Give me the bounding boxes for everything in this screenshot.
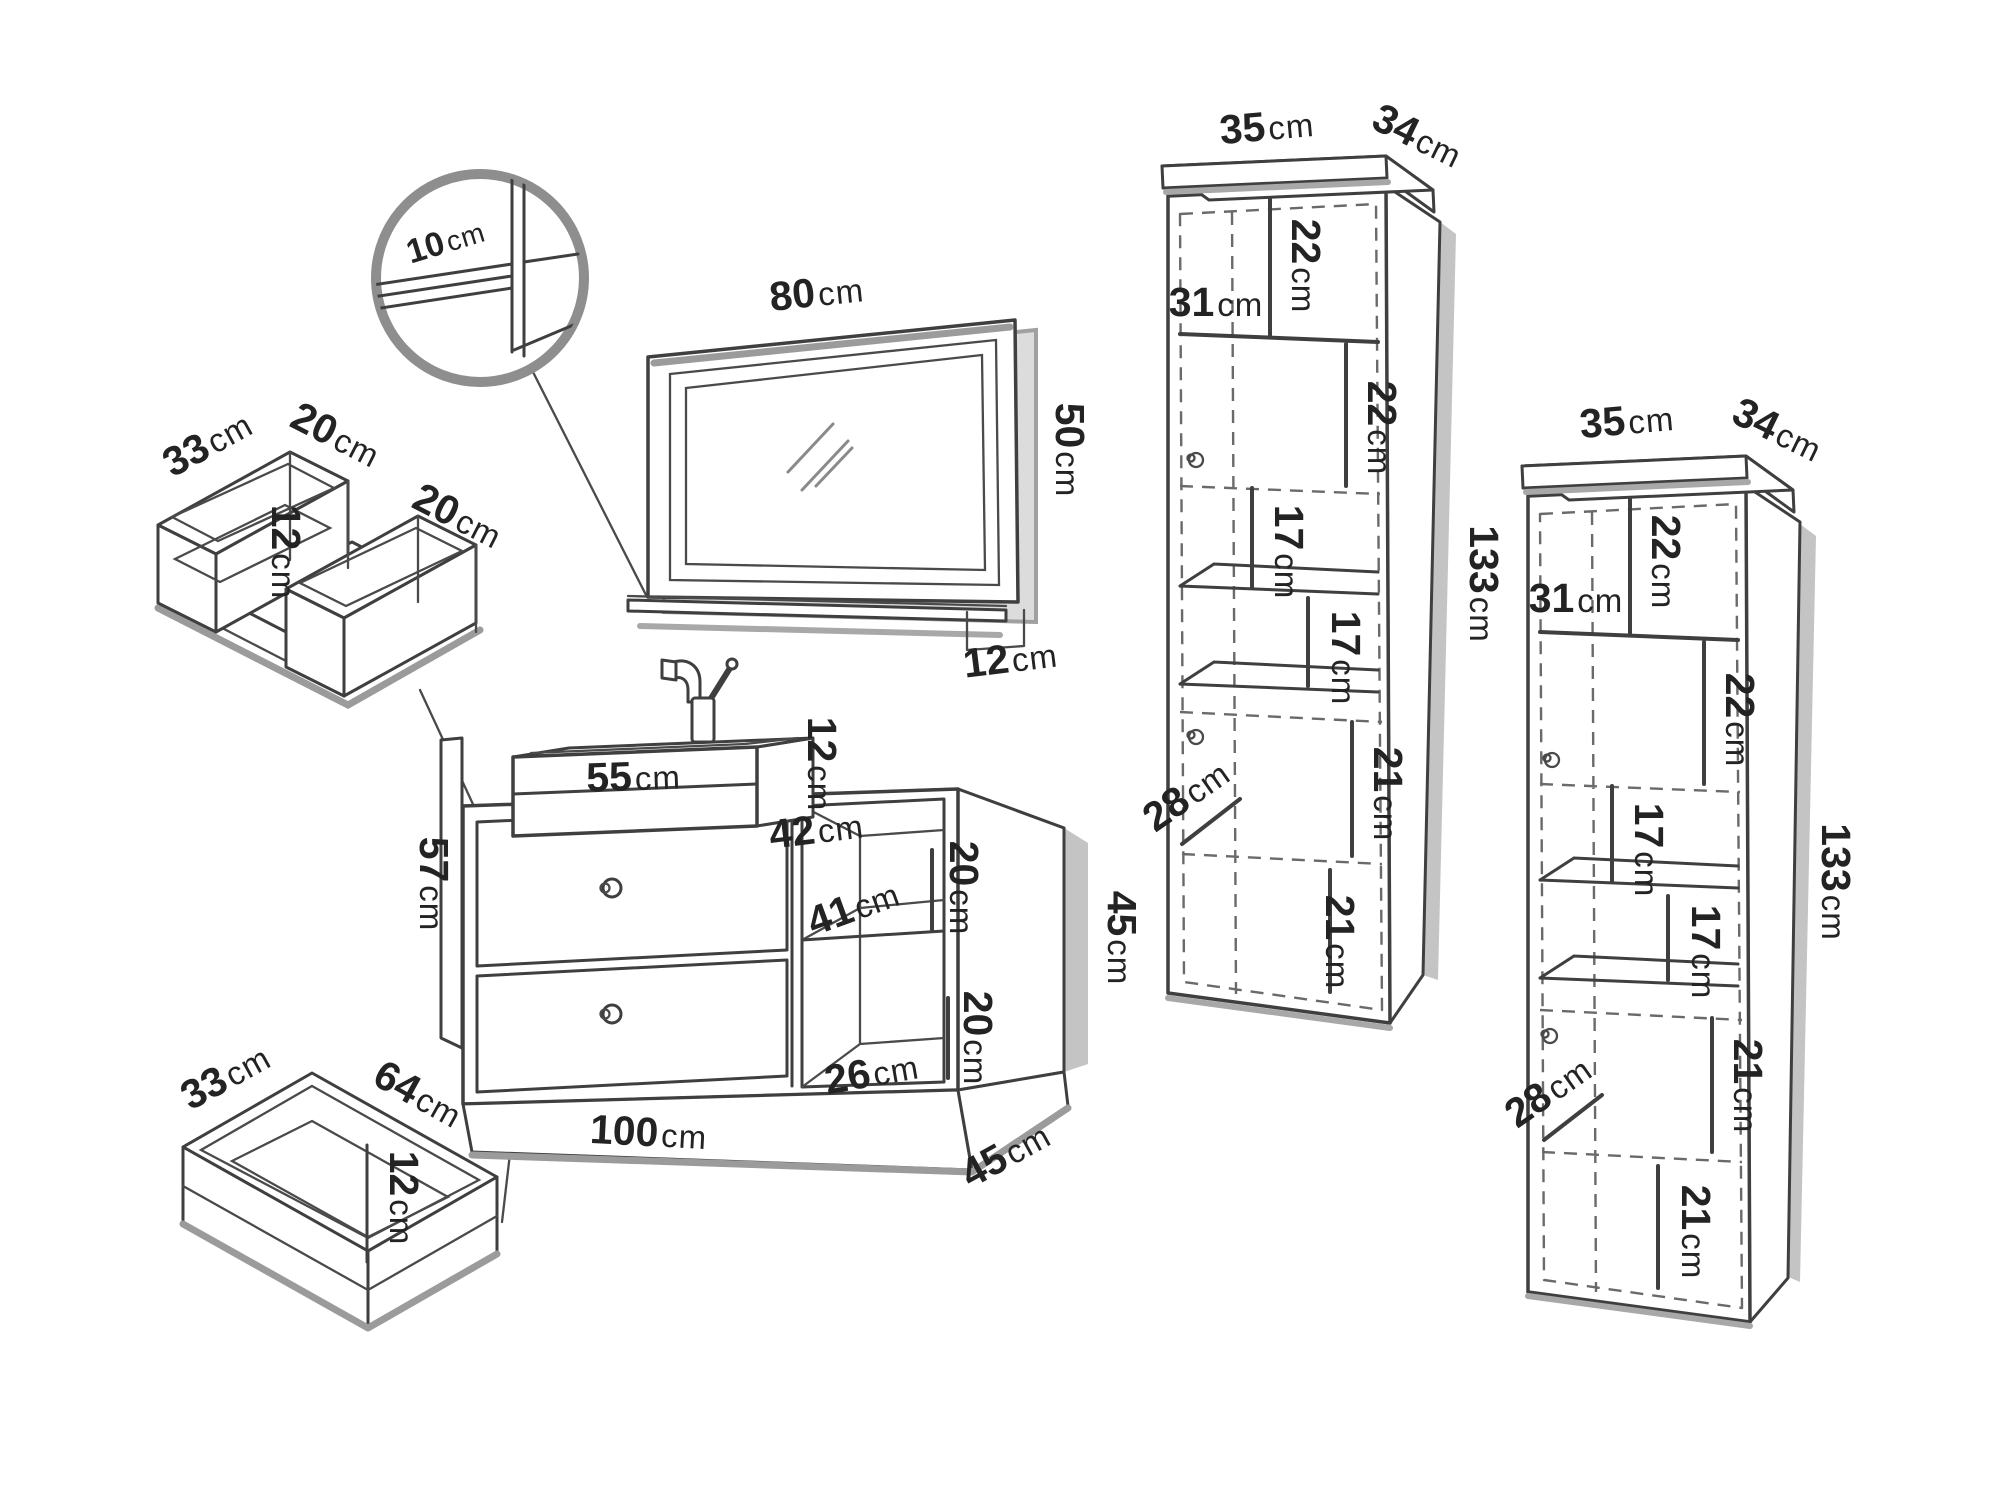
diagram-canvas: 10cm 80cm 50cm 12cm 33cm 20cm [0, 0, 2000, 1500]
faucet-spout-mouth [662, 660, 676, 680]
dim-cabinet-left-height: 133cm [1461, 525, 1507, 642]
faucet-lever [710, 668, 730, 700]
mirror-frame [648, 320, 1018, 602]
dim-cabinet-right-width: 35cm [1578, 393, 1676, 447]
dim-top-drawer-depth: 33cm [155, 400, 260, 486]
detail-circle: 10cm [366, 158, 590, 382]
top-drawer: 33cm 20cm 20cm 12cm [155, 393, 511, 705]
vanity-lower-drawer-front [477, 960, 787, 1092]
faucet [662, 659, 737, 742]
furniture-dimension-diagram: 10cm 80cm 50cm 12cm 33cm 20cm [0, 0, 2000, 1500]
dim-cabinet-right-height: 133cm [1813, 823, 1859, 940]
vanity: 55cm 12cm 57cm 42cm 41cm 20cm 20cm 26cm … [411, 659, 1145, 1197]
dim-vanity-side-height: 45cm [1099, 891, 1145, 986]
dim-cabinet-left-width: 35cm [1218, 99, 1316, 153]
faucet-spout [674, 661, 700, 702]
tall-cabinet-left: 35cm 34cm 22cm 31cm 22cm 17cm 17cm 21cm … [1134, 94, 1507, 1028]
faucet-lever-knob [727, 659, 737, 669]
dim-mirror-width: 80cm [767, 264, 866, 320]
leader-line-detail-to-mirror [533, 372, 647, 597]
dim-mirror-height: 50cm [1047, 403, 1093, 498]
detail-circle-outline [376, 174, 584, 382]
mirror-shelf-shadow [640, 626, 1000, 635]
faucet-column [692, 698, 714, 742]
dim-mirror-shelf-depth: 12cm [961, 630, 1061, 687]
bottom-drawer: 33cm 64cm 12cm [173, 1033, 497, 1328]
mirror: 80cm 50cm 12cm [628, 264, 1093, 686]
vanity-right-shadow-strip [1064, 828, 1088, 1072]
tall-cabinet-right: 35cm 34cm 22cm 31cm 22cm 17cm 17cm 21cm … [1496, 388, 1859, 1326]
